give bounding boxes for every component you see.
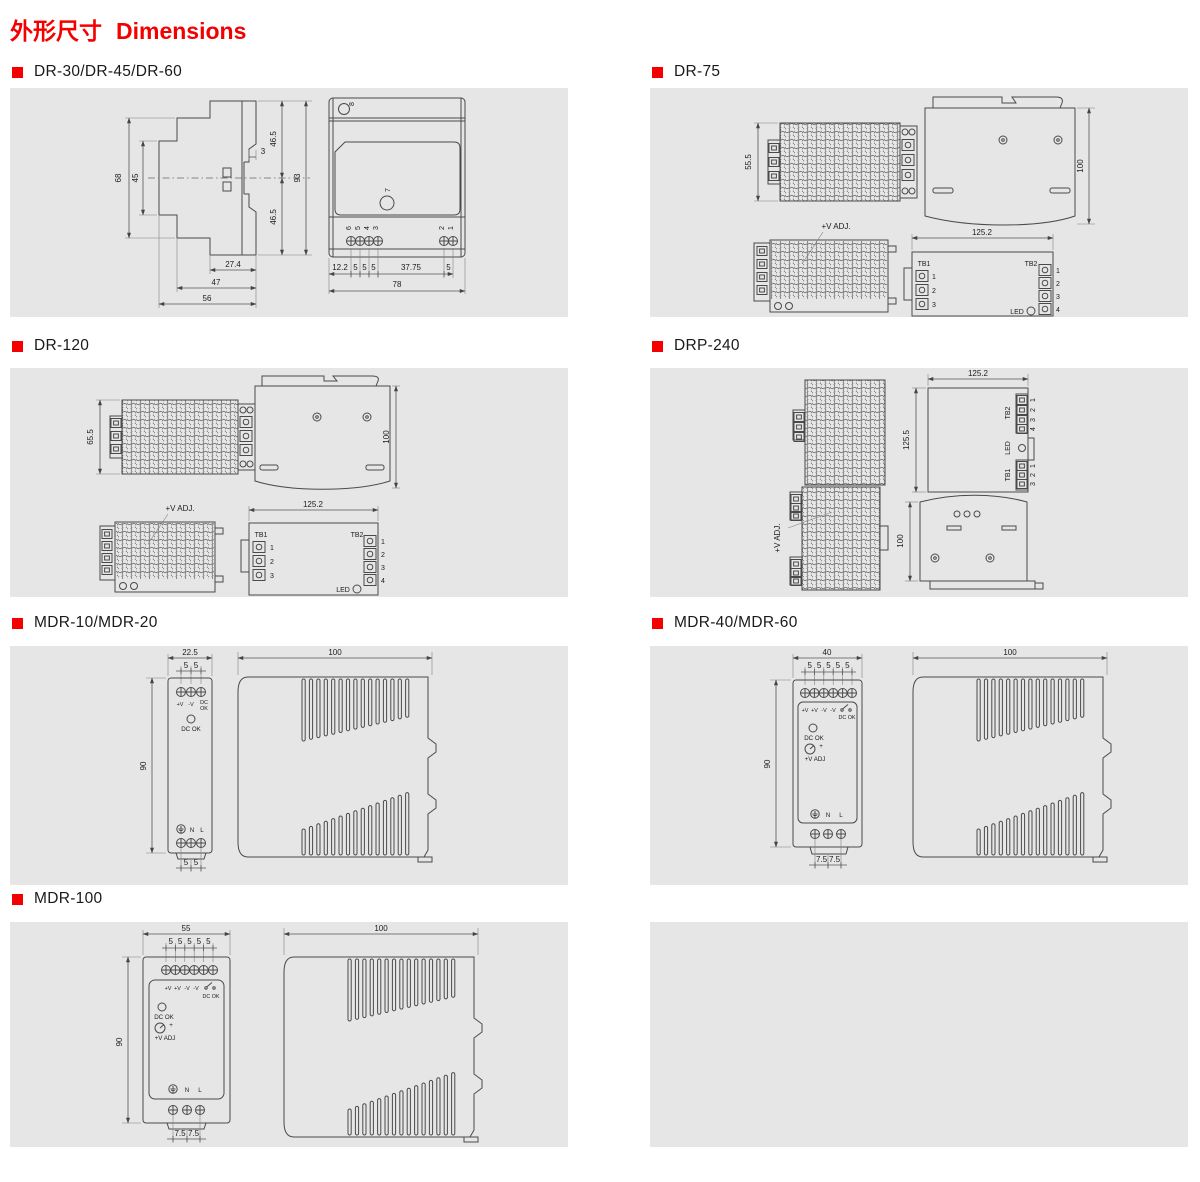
section-title: DR-75 xyxy=(674,63,720,81)
section-header-dr75: DR-75 xyxy=(652,63,720,81)
drp240-grille-view xyxy=(793,380,885,485)
tb2-label: TB2 xyxy=(351,532,364,539)
n-label: N xyxy=(826,812,830,819)
section-title: DRP-240 xyxy=(674,337,740,355)
dim-5-bot-a: 5 xyxy=(184,858,189,867)
panel-mdr10: 22.5 5 5 +V -V DC OK DC OK N L xyxy=(10,646,568,885)
bullet-icon xyxy=(652,67,663,78)
dr75-drawing: 55.5 100 +V ADJ. xyxy=(650,88,1188,317)
panel-dr75: 55.5 100 +V ADJ. xyxy=(650,88,1188,317)
t-vminus1: -V xyxy=(184,986,190,992)
tb2-pin-4: 4 xyxy=(381,578,385,585)
dim-100: 100 xyxy=(374,924,388,933)
tb2-pin-2: 2 xyxy=(1056,281,1060,288)
panel-drp240: 125.2 125.5 TB2 1 2 3 4 LED TB1 1 2 3 xyxy=(650,368,1188,597)
pin-3: 3 xyxy=(373,226,380,230)
terminal-label-vminus: -V xyxy=(188,702,194,708)
dr120-grille-view: 65.5 xyxy=(86,400,255,474)
dr30-drawing: 68 45 46.5 46.5 93 3 27.4 xyxy=(10,88,568,317)
tb1-pin-3: 3 xyxy=(270,573,274,580)
n-label: N xyxy=(185,1087,189,1094)
tb2-pin-2: 2 xyxy=(1030,408,1037,412)
dim-90: 90 xyxy=(763,759,772,768)
vadj-plus: + xyxy=(819,743,823,750)
bullet-icon xyxy=(12,341,23,352)
section-header-mdr100: MDR-100 xyxy=(12,890,102,908)
dim-125-2: 125.2 xyxy=(972,228,993,237)
mdr10-front-view: 22.5 5 5 +V -V DC OK DC OK N L xyxy=(139,648,212,872)
dim-5-b: 5 xyxy=(178,937,183,946)
dim-5-e: 5 xyxy=(206,937,211,946)
dcok-led-label: DC OK xyxy=(804,735,824,742)
tb2-pin-4: 4 xyxy=(1030,427,1037,431)
page-title-zh: 外形尺寸 xyxy=(10,18,102,44)
dr75-vadj-view: +V ADJ. xyxy=(754,222,896,312)
tb1-pin-2: 2 xyxy=(270,559,274,566)
section-title: MDR-40/MDR-60 xyxy=(674,614,798,632)
tb2-pin-4: 4 xyxy=(1056,307,1060,314)
dim-46-5-top: 46.5 xyxy=(269,131,278,147)
mdr40-drawing: 40 5 5 5 5 5 +V +V -V -V D xyxy=(650,646,1188,885)
dr120-side-view: 100 xyxy=(255,376,400,489)
vadj-label: +V ADJ xyxy=(155,1035,176,1042)
t-vplus2: +V xyxy=(174,986,181,992)
dim-5-c: 5 xyxy=(187,937,192,946)
vadj-pot-icon xyxy=(805,744,815,754)
tb1-pin-3: 3 xyxy=(1030,482,1037,486)
terminal-label-vplus: +V xyxy=(177,702,184,708)
vent-fins-bottom xyxy=(302,793,409,855)
t-vminus2: -V xyxy=(830,708,836,714)
terminal-label-ok: OK xyxy=(200,706,208,712)
dim-5-a: 5 xyxy=(807,661,812,670)
bullet-icon xyxy=(12,894,23,905)
dcok-contact-icon xyxy=(841,705,851,712)
drp240-side-view: 100 xyxy=(896,495,1043,589)
tb1-pin-2: 2 xyxy=(932,288,936,295)
dim-5-d: 5 xyxy=(836,661,841,670)
dim-5c: 5 xyxy=(371,263,376,272)
dim-5-d: 5 xyxy=(197,937,202,946)
dim-56: 56 xyxy=(203,294,212,303)
vent-fins-top xyxy=(348,959,455,1021)
tb1-label: TB1 xyxy=(918,261,931,268)
dim-100: 100 xyxy=(1076,159,1085,173)
dr30-side-view: 68 45 46.5 46.5 93 3 27.4 xyxy=(114,101,312,308)
t-vminus1: -V xyxy=(821,708,827,714)
panel-empty xyxy=(650,922,1188,1147)
t-vminus2: -V xyxy=(193,986,199,992)
pin-5: 5 xyxy=(355,226,362,230)
dim-100: 100 xyxy=(1003,648,1017,657)
dim-55-5: 55.5 xyxy=(744,154,753,170)
dr75-grille-view: 55.5 xyxy=(744,123,917,201)
mdr40-front-view: 40 5 5 5 5 5 +V +V -V -V D xyxy=(763,648,862,869)
dim-5b: 5 xyxy=(362,263,367,272)
pin-1: 1 xyxy=(448,226,455,230)
vadj-plus: + xyxy=(169,1022,173,1029)
dim-125-5: 125.5 xyxy=(902,429,911,450)
n-label: N xyxy=(190,827,194,834)
dim-125-2: 125.2 xyxy=(968,369,989,378)
dim-5-e: 5 xyxy=(845,661,850,670)
drp240-top-view: 125.2 125.5 TB2 1 2 3 4 LED TB1 1 2 3 xyxy=(902,369,1037,492)
dim-3: 3 xyxy=(261,147,266,156)
dr30-front-view: 8 7 6 5 4 3 2 1 12. xyxy=(329,98,465,294)
tb1-pin-2: 2 xyxy=(1030,473,1037,477)
dr120-top-view: 125.2 TB1 1 2 3 TB2 1 2 3 4 LED xyxy=(241,500,385,595)
section-header-dr120: DR-120 xyxy=(12,337,89,355)
bullet-icon xyxy=(12,618,23,629)
tb1-label: TB1 xyxy=(1005,468,1012,481)
section-header-mdr10: MDR-10/MDR-20 xyxy=(12,614,158,632)
dim-5d: 5 xyxy=(446,263,451,272)
mdr100-drawing: 55 5 5 5 5 5 +V +V -V -V D xyxy=(10,922,568,1147)
section-title: DR-30/DR-45/DR-60 xyxy=(34,63,182,81)
dr120-drawing: 65.5 100 +V ADJ. xyxy=(10,368,568,597)
dim-5-top-b: 5 xyxy=(194,661,199,670)
vent-fins-top xyxy=(302,679,409,741)
dim-78: 78 xyxy=(393,280,402,289)
tb2-pin-3: 3 xyxy=(1030,418,1037,422)
mdr100-front-view: 55 5 5 5 5 5 +V +V -V -V D xyxy=(115,924,230,1143)
vent-fins-top xyxy=(977,679,1084,741)
dim-93: 93 xyxy=(293,173,302,182)
bullet-icon xyxy=(652,341,663,352)
dim-45: 45 xyxy=(131,173,140,182)
section-header-dr30: DR-30/DR-45/DR-60 xyxy=(12,63,182,81)
dim-37-75: 37.75 xyxy=(401,263,422,272)
section-header-mdr40: MDR-40/MDR-60 xyxy=(652,614,798,632)
dim-5a: 5 xyxy=(353,263,358,272)
dim-7-5-a: 7.5 xyxy=(816,855,828,864)
dim-27-4: 27.4 xyxy=(225,260,241,269)
section-title: MDR-100 xyxy=(34,890,102,908)
dim-125-2: 125.2 xyxy=(303,500,324,509)
l-label: L xyxy=(839,812,843,819)
dim-40: 40 xyxy=(823,648,832,657)
dcok-contact-icon xyxy=(205,983,215,990)
page-title: 外形尺寸Dimensions xyxy=(10,12,246,46)
dr120-vadj-view: +V ADJ. xyxy=(100,504,223,592)
vent-fins-bottom xyxy=(977,793,1084,855)
dcok-led-label: DC OK xyxy=(181,726,201,733)
t-vplus1: +V xyxy=(802,708,809,714)
dim-90: 90 xyxy=(139,761,148,770)
mdr10-drawing: 22.5 5 5 +V -V DC OK DC OK N L xyxy=(10,646,568,885)
dim-100: 100 xyxy=(328,648,342,657)
tb2-pin-1: 1 xyxy=(381,539,385,546)
dim-55: 55 xyxy=(182,924,191,933)
dim-5-b: 5 xyxy=(817,661,822,670)
dcok-contact-label: DC OK xyxy=(838,715,855,721)
dim-7-5-b: 7.5 xyxy=(188,1129,200,1138)
dim-5-bot-b: 5 xyxy=(194,858,199,867)
dim-100: 100 xyxy=(896,534,905,548)
dcok-led-label: DC OK xyxy=(154,1014,174,1021)
tb2-pin-1: 1 xyxy=(1056,268,1060,275)
dim-65-5: 65.5 xyxy=(86,429,95,445)
dim-90: 90 xyxy=(115,1037,124,1046)
dim-7-5-b: 7.5 xyxy=(829,855,841,864)
tb2-pin-1: 1 xyxy=(1030,398,1037,402)
hole-7-label: 7 xyxy=(385,188,392,192)
tb2-label: TB2 xyxy=(1025,261,1038,268)
datasheet-page: 外形尺寸Dimensions DR-30/DR-45/DR-60 DR-75 D… xyxy=(0,0,1200,1182)
panel-dr120: 65.5 100 +V ADJ. xyxy=(10,368,568,597)
pin-2: 2 xyxy=(439,226,446,230)
t-vplus1: +V xyxy=(165,986,172,992)
vent-fins-bottom xyxy=(348,1073,455,1135)
section-header-drp240: DRP-240 xyxy=(652,337,740,355)
tb1-pin-3: 3 xyxy=(932,302,936,309)
dim-7-5-a: 7.5 xyxy=(174,1129,186,1138)
dim-100: 100 xyxy=(382,430,391,444)
dim-5-a: 5 xyxy=(168,937,173,946)
page-title-en: Dimensions xyxy=(116,18,246,44)
hole-8-label: 8 xyxy=(349,102,356,106)
panel-dr30: 68 45 46.5 46.5 93 3 27.4 xyxy=(10,88,568,317)
tb2-pin-3: 3 xyxy=(1056,294,1060,301)
vadj-pot-icon xyxy=(155,1023,165,1033)
mdr10-side-view: 100 xyxy=(238,648,436,862)
l-label: L xyxy=(198,1087,202,1094)
tb1-label: TB1 xyxy=(255,532,268,539)
mdr40-side-view: 100 xyxy=(913,648,1111,862)
dim-5-top-a: 5 xyxy=(184,661,189,670)
panel-mdr100: 55 5 5 5 5 5 +V +V -V -V D xyxy=(10,922,568,1147)
bullet-icon xyxy=(12,67,23,78)
dcok-contact-label: DC OK xyxy=(202,994,219,1000)
tb2-pin-2: 2 xyxy=(381,552,385,559)
vadj-label: +V ADJ. xyxy=(165,504,194,513)
section-title: MDR-10/MDR-20 xyxy=(34,614,158,632)
drp240-drawing: 125.2 125.5 TB2 1 2 3 4 LED TB1 1 2 3 xyxy=(650,368,1188,597)
dr75-side-view: 100 xyxy=(925,97,1095,225)
dr75-top-view: 125.2 TB1 1 2 3 TB2 1 2 3 4 LED xyxy=(904,228,1060,316)
dim-68: 68 xyxy=(114,173,123,182)
panel-mdr40: 40 5 5 5 5 5 +V +V -V -V D xyxy=(650,646,1188,885)
pin-6: 6 xyxy=(346,226,353,230)
mdr100-side-view: 100 xyxy=(284,924,482,1142)
tb2-label: TB2 xyxy=(1005,406,1012,419)
vadj-label: +V ADJ. xyxy=(773,523,782,552)
dim-22-5: 22.5 xyxy=(182,648,198,657)
drp240-vadj-view: +V ADJ. xyxy=(773,487,888,590)
l-label: L xyxy=(200,827,204,834)
dim-46-5-bot: 46.5 xyxy=(269,209,278,225)
vadj-label: +V ADJ. xyxy=(821,222,850,231)
section-title: DR-120 xyxy=(34,337,89,355)
dim-12-2: 12.2 xyxy=(332,263,348,272)
pin-4: 4 xyxy=(364,226,371,230)
t-vplus2: +V xyxy=(811,708,818,714)
bullet-icon xyxy=(652,618,663,629)
dim-5-c: 5 xyxy=(826,661,831,670)
led-label: LED xyxy=(336,587,350,594)
tb1-pin-1: 1 xyxy=(1030,464,1037,468)
led-label: LED xyxy=(1010,309,1024,316)
dim-47: 47 xyxy=(212,278,221,287)
tb1-pin-1: 1 xyxy=(270,545,274,552)
led-label: LED xyxy=(1005,441,1012,455)
vadj-label: +V ADJ xyxy=(805,756,826,763)
tb2-pin-3: 3 xyxy=(381,565,385,572)
tb1-pin-1: 1 xyxy=(932,274,936,281)
